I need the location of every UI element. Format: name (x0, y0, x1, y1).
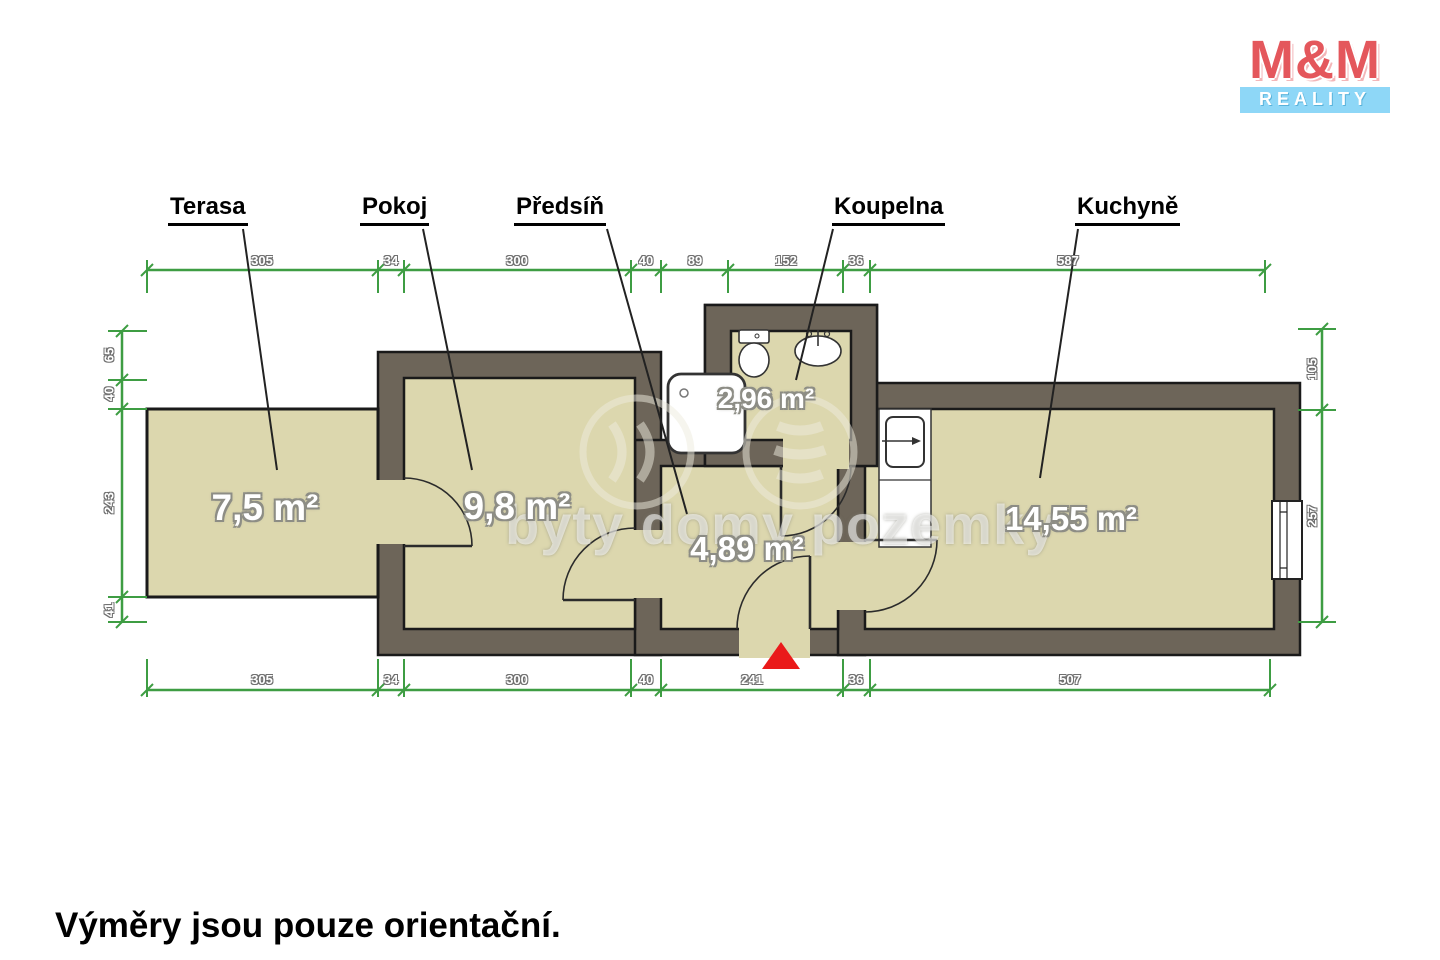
dim-bottom-2: 34 (384, 672, 398, 687)
room-label-pokoj: Pokoj (360, 193, 429, 226)
room-label-kuchyne: Kuchyně (1075, 193, 1180, 226)
room-label-predsin: Předsíň (514, 193, 606, 226)
dim-top-7: 36 (849, 253, 863, 268)
dimension-line-top (141, 260, 1271, 293)
area-terasa: 7,5 m² (212, 487, 319, 529)
dimension-line-bottom (141, 659, 1276, 697)
area-pokoj: 9,8 m² (464, 486, 571, 528)
dim-bottom-5: 241 (741, 672, 763, 687)
opening-terasa-pokoj (375, 480, 407, 544)
floorplan-canvas (0, 0, 1440, 960)
window-kitchen (1272, 501, 1302, 579)
dim-bottom-3: 300 (506, 672, 528, 687)
dim-top-6: 152 (775, 253, 797, 268)
logo-brand-text: M&M (1240, 34, 1390, 86)
dim-bottom-4: 40 (639, 672, 653, 687)
dim-bottom-7: 507 (1059, 672, 1081, 687)
dim-top-5: 89 (688, 253, 702, 268)
dim-bottom-1: 305 (251, 672, 273, 687)
room-label-koupelna: Koupelna (832, 193, 945, 226)
dim-right-2: 257 (1305, 505, 1320, 527)
dim-top-8: 587 (1057, 253, 1079, 268)
area-kuchyne: 14,55 m² (1005, 500, 1137, 538)
dim-bottom-6: 36 (849, 672, 863, 687)
agency-logo: M&M REALITY (1240, 34, 1390, 113)
footer-note: Výměry jsou pouze orientační. (55, 906, 561, 946)
dim-left-1: 65 (102, 348, 117, 362)
dim-top-2: 34 (384, 253, 398, 268)
dim-top-1: 305 (251, 253, 273, 268)
dim-left-2: 40 (102, 387, 117, 401)
dimension-line-left (108, 325, 147, 628)
area-koupelna: 2,96 m² (718, 383, 815, 415)
dim-left-3: 243 (102, 492, 117, 514)
dim-right-1: 105 (1305, 358, 1320, 380)
toilet-icon (739, 330, 769, 377)
dim-left-4: 41 (102, 603, 117, 617)
area-predsin: 4,89 m² (690, 530, 804, 568)
dim-top-4: 40 (639, 253, 653, 268)
logo-tagline-text: REALITY (1240, 87, 1390, 113)
dim-top-3: 300 (506, 253, 528, 268)
room-label-terasa: Terasa (168, 193, 248, 226)
